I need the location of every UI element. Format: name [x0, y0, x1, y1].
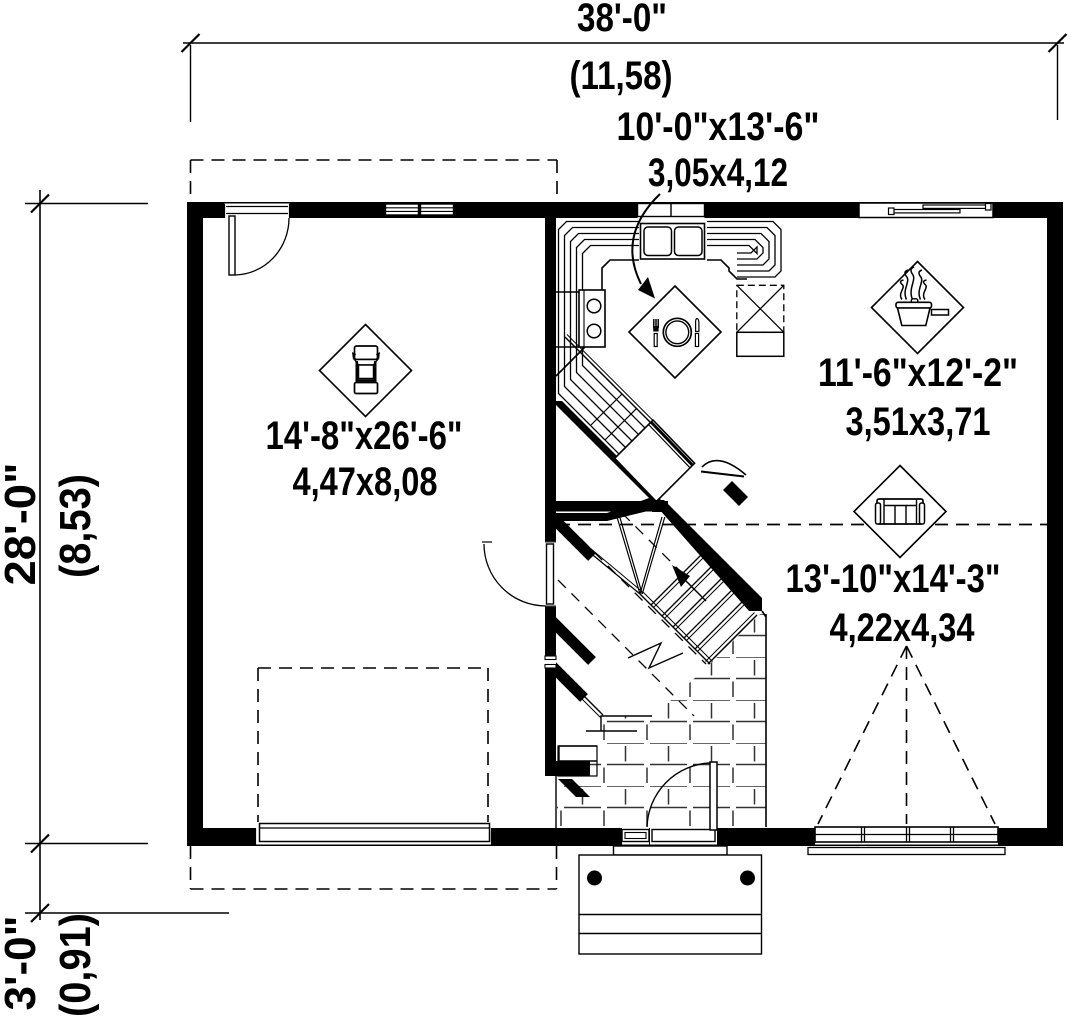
svg-text:(11,58): (11,58) — [570, 54, 673, 98]
svg-text:4,22x4,34: 4,22x4,34 — [830, 606, 976, 650]
svg-text:(0,91): (0,91) — [51, 913, 100, 1017]
svg-text:4,47x8,08: 4,47x8,08 — [293, 460, 438, 504]
svg-text:10'-0"x13'-6": 10'-0"x13'-6" — [617, 105, 820, 149]
svg-text:3'-0": 3'-0" — [0, 916, 45, 1011]
svg-text:28'-0": 28'-0" — [0, 463, 45, 586]
svg-text:11'-6"x12'-2": 11'-6"x12'-2" — [818, 351, 1018, 395]
svg-text:(8,53): (8,53) — [51, 474, 100, 578]
svg-text:3,05x4,12: 3,05x4,12 — [648, 151, 788, 195]
svg-text:3,51x3,71: 3,51x3,71 — [846, 400, 991, 444]
svg-text:38'-0": 38'-0" — [577, 0, 667, 40]
svg-text:13'-10"x14'-3": 13'-10"x14'-3" — [786, 557, 1001, 601]
svg-text:14'-8"x26'-6": 14'-8"x26'-6" — [266, 414, 463, 458]
